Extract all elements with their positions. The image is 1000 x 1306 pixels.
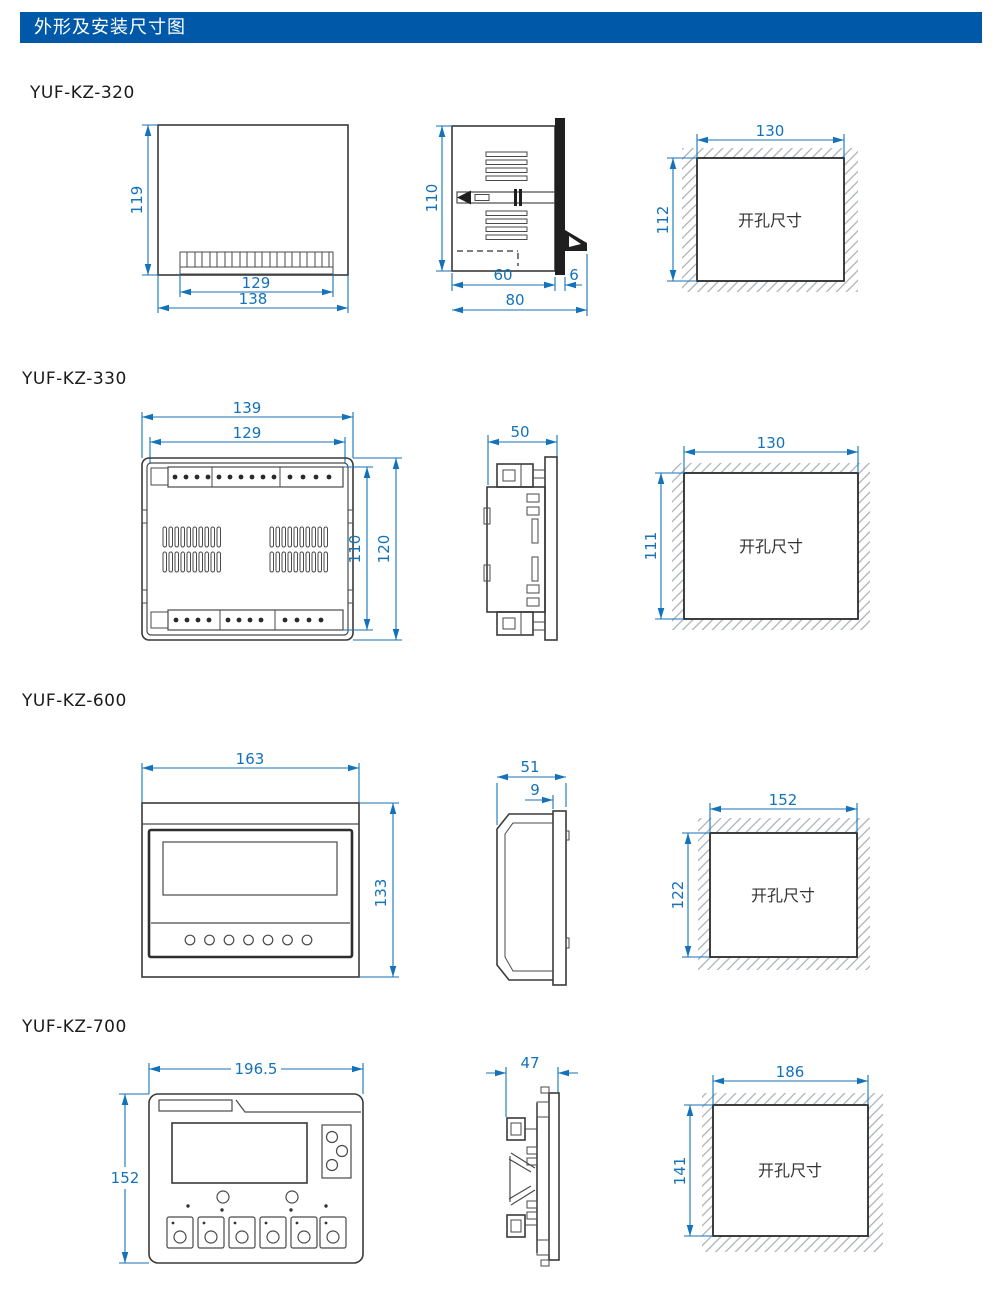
kz330-cutout-view: 130 111 开孔尺寸 — [645, 425, 935, 655]
dim-600-side-depth: 51 — [520, 758, 539, 776]
kz320-front-view: 119 129 138 — [120, 112, 410, 322]
dim-330-front-height: 120 — [375, 535, 393, 564]
dim-320-cutout-width: 130 — [756, 122, 785, 140]
dim-600-cutout-width: 152 — [769, 791, 798, 809]
model-label-kz700: YUF-KZ-700 — [22, 1017, 127, 1037]
dim-700-front-height: 152 — [111, 1169, 140, 1187]
model-label-kz320: YUF-KZ-320 — [30, 83, 135, 103]
kz600-side-view: 51 9 — [480, 755, 600, 995]
dim-330-cutout-width: 130 — [757, 434, 786, 452]
dim-600-cutout-height: 122 — [669, 881, 687, 910]
kz330-side-view: 50 — [455, 400, 625, 660]
kz600-front-view: 163 133 — [130, 745, 420, 995]
dim-700-front-width: 196.5 — [235, 1060, 278, 1078]
kz600-cutout-view: 152 122 开孔尺寸 — [660, 775, 950, 995]
dim-330-front-inner-height: 110 — [346, 535, 364, 564]
cutout-label-700: 开孔尺寸 — [758, 1161, 822, 1180]
kz700-cutout-view: 186 141 开孔尺寸 — [660, 1065, 950, 1300]
dim-330-side-depth: 50 — [510, 423, 529, 441]
dim-320-cutout-height: 112 — [655, 206, 672, 235]
cutout-label-320: 开孔尺寸 — [738, 211, 802, 230]
kz330-front-view: 139 129 — [130, 395, 420, 660]
dim-320-side-total-depth: 80 — [505, 291, 524, 309]
page-title: 外形及安装尺寸图 — [34, 17, 186, 38]
dim-320-side-panel: 6 — [569, 266, 579, 284]
kz320-side-view: 110 60 6 80 — [410, 108, 640, 323]
dimension-drawing-page: 外形及安装尺寸图 YUF-KZ-320 YUF-KZ-330 YUF-KZ-60… — [0, 0, 1000, 1306]
kz700-side-view: 47 — [480, 1055, 600, 1300]
dim-330-front-width: 139 — [233, 399, 262, 417]
dim-600-front-height: 133 — [372, 879, 390, 908]
dim-320-front-height: 119 — [128, 186, 146, 215]
dim-330-front-inner-width: 129 — [233, 424, 262, 442]
dim-600-front-width: 163 — [236, 750, 265, 768]
dim-700-cutout-height: 141 — [671, 1157, 689, 1186]
model-label-kz330: YUF-KZ-330 — [22, 369, 127, 389]
section-header: 外形及安装尺寸图 — [20, 12, 982, 43]
cutout-label-330: 开孔尺寸 — [739, 537, 803, 556]
dim-320-side-height: 110 — [423, 184, 441, 213]
dim-700-cutout-width: 186 — [776, 1065, 805, 1081]
dim-600-side-bezel: 9 — [530, 781, 540, 799]
cutout-label-600: 开孔尺寸 — [751, 886, 815, 905]
dim-320-front-width: 138 — [239, 290, 268, 308]
model-label-kz600: YUF-KZ-600 — [22, 691, 127, 711]
dim-330-cutout-height: 111 — [645, 532, 660, 561]
dim-320-side-depth: 60 — [493, 266, 512, 284]
dim-700-side-depth: 47 — [520, 1055, 539, 1072]
kz700-front-view: 196.5 152 — [95, 1055, 395, 1300]
kz320-cutout-view: 130 112 开孔尺寸 — [655, 112, 950, 312]
